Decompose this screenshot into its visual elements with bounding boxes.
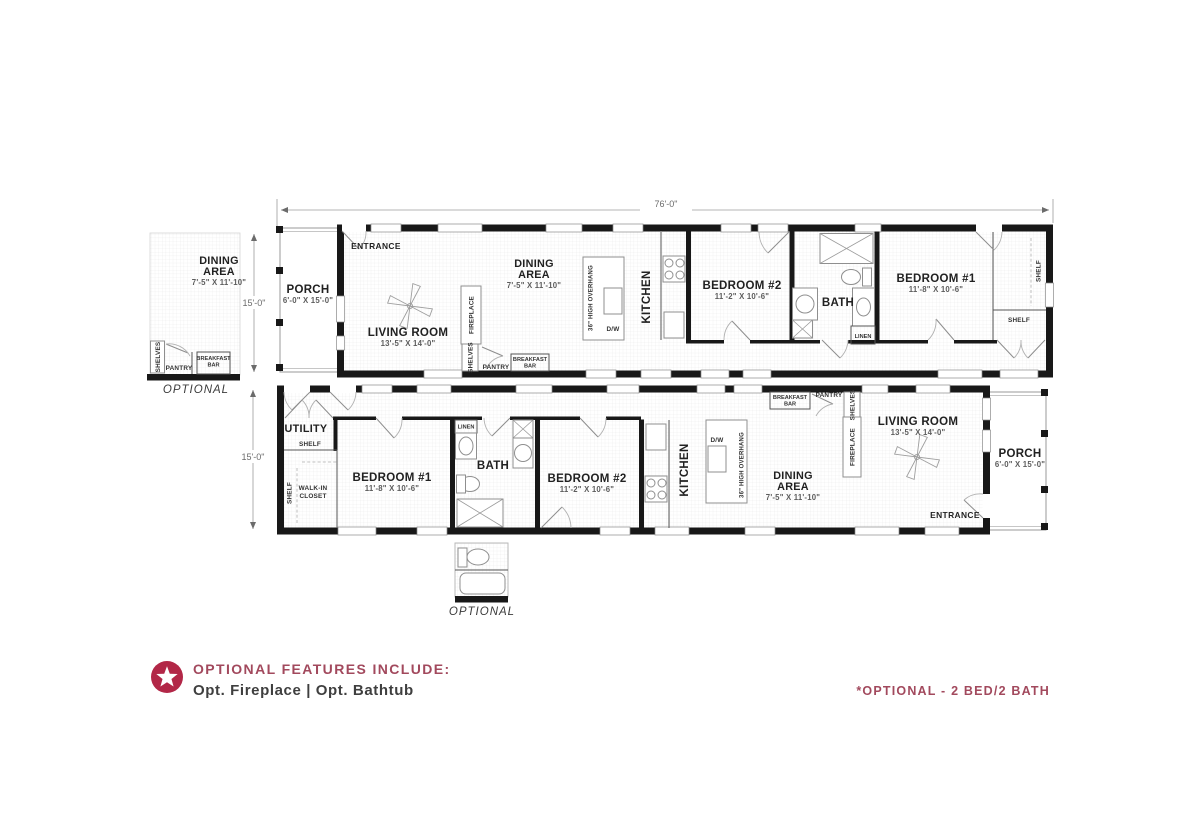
top-bedroom2-label: BEDROOM #2: [702, 280, 781, 292]
optional-dining-breakfast-bar-label-2: BAR: [207, 363, 219, 369]
top-living-room-size: 13'-5" X 14'-0": [381, 339, 436, 348]
top-bath-label: BATH: [822, 297, 854, 309]
top-breakfast-bar-label-2: BAR: [524, 364, 536, 370]
bottom-kitchen-label: KITCHEN: [679, 443, 691, 496]
bottom-bath-label: BATH: [477, 460, 509, 472]
optional-dining-shelves-label: SHELVES: [155, 341, 162, 372]
optional-dining-pantry-label: PANTRY: [166, 365, 193, 372]
top-bedroom2-size: 11'-2" X 10'-6": [715, 292, 770, 301]
bottom-overhang-label: 36" HIGH OVERHANG: [740, 432, 746, 498]
top-bedroom1-label: BEDROOM #1: [896, 273, 975, 285]
bottom-walkin-label-2: CLOSET: [299, 493, 326, 500]
footer-note: *OPTIONAL - 2 BED/2 BATH: [856, 684, 1050, 698]
top-shelf-vertical-label: SHELF: [1036, 260, 1043, 282]
bottom-walkin-label-1: WALK-IN: [299, 485, 328, 492]
bottom-entrance-label: ENTRANCE: [930, 510, 980, 520]
bottom-bedroom1-size: 11'-8" X 10'-6": [365, 484, 420, 493]
dimension-bottom-plan-height: 15'-0": [242, 452, 265, 462]
top-breakfast-bar-label-1: BREAKFAST: [513, 357, 548, 363]
top-bedroom1-size: 11'-8" X 10'-6": [909, 285, 964, 294]
top-living-room-label: LIVING ROOM: [368, 327, 449, 339]
bottom-breakfast-bar-label-2: BAR: [784, 402, 796, 408]
floor-plan-canvas: 76'-0" 15'-0" 15'-0" SHELVES PANTRY BREA…: [0, 0, 1200, 818]
top-porch-label: PORCH: [286, 284, 329, 296]
top-overhang-label: 36" HIGH OVERHANG: [589, 265, 595, 331]
bottom-porch-label: PORCH: [998, 448, 1041, 460]
top-dining-size: 7'-5" X 11'-10": [507, 281, 562, 290]
bottom-bedroom1-label: BEDROOM #1: [352, 472, 431, 484]
top-shelf-label: SHELF: [1008, 317, 1030, 324]
optional-dining-bumpout: SHELVES PANTRY BREAKFAST BAR DINING AREA…: [147, 233, 246, 396]
top-fireplace-label: FIREPLACE: [469, 295, 476, 334]
top-dining-label-2: AREA: [518, 269, 550, 281]
top-floor-plan: ENTRANCE PORCH 6'-0" X 15'-0" LIVING ROO…: [276, 224, 1054, 378]
bottom-breakfast-bar-label-1: BREAKFAST: [773, 395, 808, 401]
bottom-floor-plan: UTILITY SHELF WALK-IN CLOSET SHELF BEDRO…: [277, 385, 1048, 535]
bottom-dining-size: 7'-5" X 11'-10": [766, 493, 821, 502]
top-dishwasher-label: D/W: [606, 326, 620, 333]
bottom-living-room-size: 13'-5" X 14'-0": [891, 428, 946, 437]
top-kitchen-label: KITCHEN: [641, 270, 653, 323]
floor-plan-sheet: 76'-0" 15'-0" 15'-0" SHELVES PANTRY BREA…: [0, 0, 1200, 818]
bottom-pantry-label: PANTRY: [816, 392, 843, 399]
optional-bath-bumpout: OPTIONAL: [449, 543, 515, 618]
optional-dining-size: 7'-5" X 11'-10": [192, 278, 247, 287]
bottom-living-room-label: LIVING ROOM: [878, 416, 959, 428]
bottom-fireplace-label: FIREPLACE: [850, 427, 857, 466]
bottom-dining-label-2: AREA: [777, 481, 809, 493]
optional-dining-caption: OPTIONAL: [163, 384, 229, 396]
dimension-overall-width: 76'-0": [655, 199, 678, 209]
bottom-utility-label: UTILITY: [285, 423, 328, 435]
footer-body: Opt. Fireplace | Opt. Bathtub: [193, 682, 414, 699]
footer-legend: OPTIONAL FEATURES INCLUDE: Opt. Fireplac…: [151, 661, 1050, 699]
top-pantry-label: PANTRY: [483, 364, 510, 371]
bottom-bedroom2-label: BEDROOM #2: [547, 473, 626, 485]
optional-bath-caption: OPTIONAL: [449, 606, 515, 618]
bottom-utility-shelf-label: SHELF: [299, 441, 321, 448]
optional-dining-name-2: AREA: [203, 266, 235, 278]
bottom-dishwasher-label: D/W: [710, 437, 724, 444]
bottom-linen-label: LINEN: [458, 425, 475, 431]
bottom-porch-size: 6'-0" X 15'-0": [995, 460, 1045, 469]
footer-title: OPTIONAL FEATURES INCLUDE:: [193, 661, 451, 677]
top-linen-label: LINEN: [855, 334, 872, 340]
optional-dining-breakfast-bar-label-1: BREAKFAST: [196, 356, 231, 362]
top-entrance-label: ENTRANCE: [351, 241, 401, 251]
top-porch-size: 6'-0" X 15'-0": [283, 296, 333, 305]
bottom-shelf-vertical-label: SHELF: [287, 482, 294, 504]
bottom-bedroom2-size: 11'-2" X 10'-6": [560, 485, 615, 494]
bottom-shelves-label: SHELVES: [850, 389, 857, 420]
top-shelves-label: SHELVES: [468, 342, 475, 373]
dimension-top-plan-height: 15'-0": [243, 298, 266, 308]
